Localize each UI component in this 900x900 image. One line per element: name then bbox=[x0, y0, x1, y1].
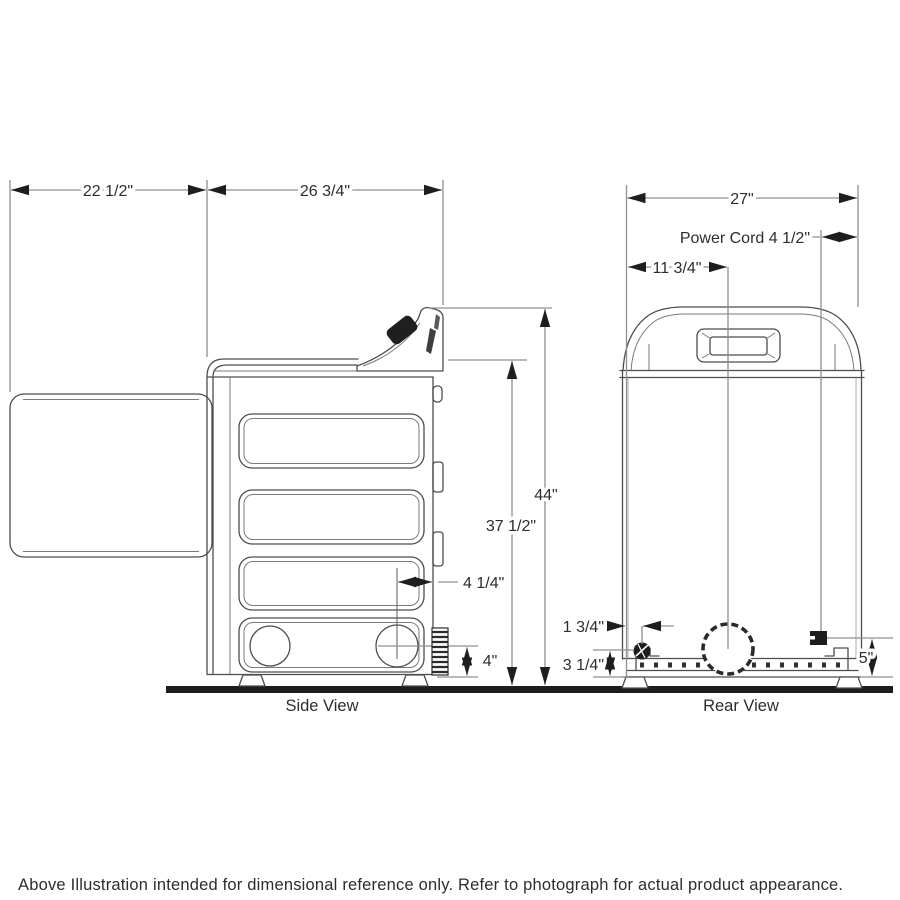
dim-gas-offset: 1 3/4" bbox=[563, 619, 674, 644]
dim-vent-offset: 11 3/4" bbox=[628, 260, 727, 277]
dim-cabinet-height-label: 37 1/2" bbox=[486, 518, 536, 535]
open-door-icon bbox=[10, 394, 212, 557]
dim-overall-height: 44" bbox=[534, 309, 557, 685]
dim-power-cord: Power Cord 4 1/2" bbox=[680, 230, 857, 247]
dim-exhaust-height-label: 4" bbox=[483, 653, 498, 670]
rear-view-drawing bbox=[620, 307, 864, 688]
footer-disclaimer: Above Illustration intended for dimensio… bbox=[18, 876, 843, 894]
side-cabinet bbox=[207, 308, 478, 687]
floor-line bbox=[166, 686, 893, 693]
rear-view-label: Rear View bbox=[703, 697, 779, 715]
power-cord-block-icon bbox=[810, 631, 827, 645]
dim-gas-offset-label: 1 3/4" bbox=[563, 619, 604, 636]
diagram-canvas: 22 1/2" 26 3/4" 27" Power Cord 4 1/2" 11… bbox=[0, 0, 900, 900]
dim-door-depth: 22 1/2" bbox=[11, 183, 206, 200]
rear-console bbox=[620, 307, 864, 378]
rear-edge-details bbox=[432, 386, 448, 675]
dim-cabinet-height: 37 1/2" bbox=[486, 361, 536, 685]
side-view-drawing bbox=[10, 308, 478, 687]
dimension-diagram: 22 1/2" 26 3/4" 27" Power Cord 4 1/2" 11… bbox=[0, 0, 900, 900]
port-circle-left bbox=[250, 626, 290, 666]
dim-exhaust-from-rear: 4 1/4" bbox=[398, 575, 504, 592]
exhaust-duct-icon bbox=[432, 628, 448, 675]
side-panel-recesses bbox=[239, 414, 424, 672]
dim-power-cord-label: Power Cord 4 1/2" bbox=[680, 230, 810, 247]
foot bbox=[239, 675, 265, 686]
dim-overall-height-label: 44" bbox=[534, 487, 557, 504]
dim-width: 27" bbox=[628, 191, 858, 208]
side-view-label: Side View bbox=[285, 697, 358, 715]
dim-cabinet-depth-label: 26 3/4" bbox=[300, 183, 350, 200]
foot bbox=[402, 675, 428, 686]
gas-connection-icon bbox=[634, 643, 651, 660]
foot bbox=[836, 677, 862, 688]
dim-gas-height-label: 3 1/4" bbox=[563, 657, 604, 674]
control-console-side bbox=[357, 308, 443, 372]
foot bbox=[622, 677, 648, 688]
dim-cabinet-depth: 26 3/4" bbox=[208, 183, 442, 200]
dim-cord-height-label: 5" bbox=[859, 650, 874, 667]
dim-width-label: 27" bbox=[730, 191, 753, 208]
dim-exhaust-from-rear-label: 4 1/4" bbox=[463, 575, 504, 592]
dim-cord-height: 5" bbox=[827, 638, 893, 677]
dim-door-depth-label: 22 1/2" bbox=[83, 183, 133, 200]
dim-vent-offset-label: 11 3/4" bbox=[653, 260, 702, 277]
